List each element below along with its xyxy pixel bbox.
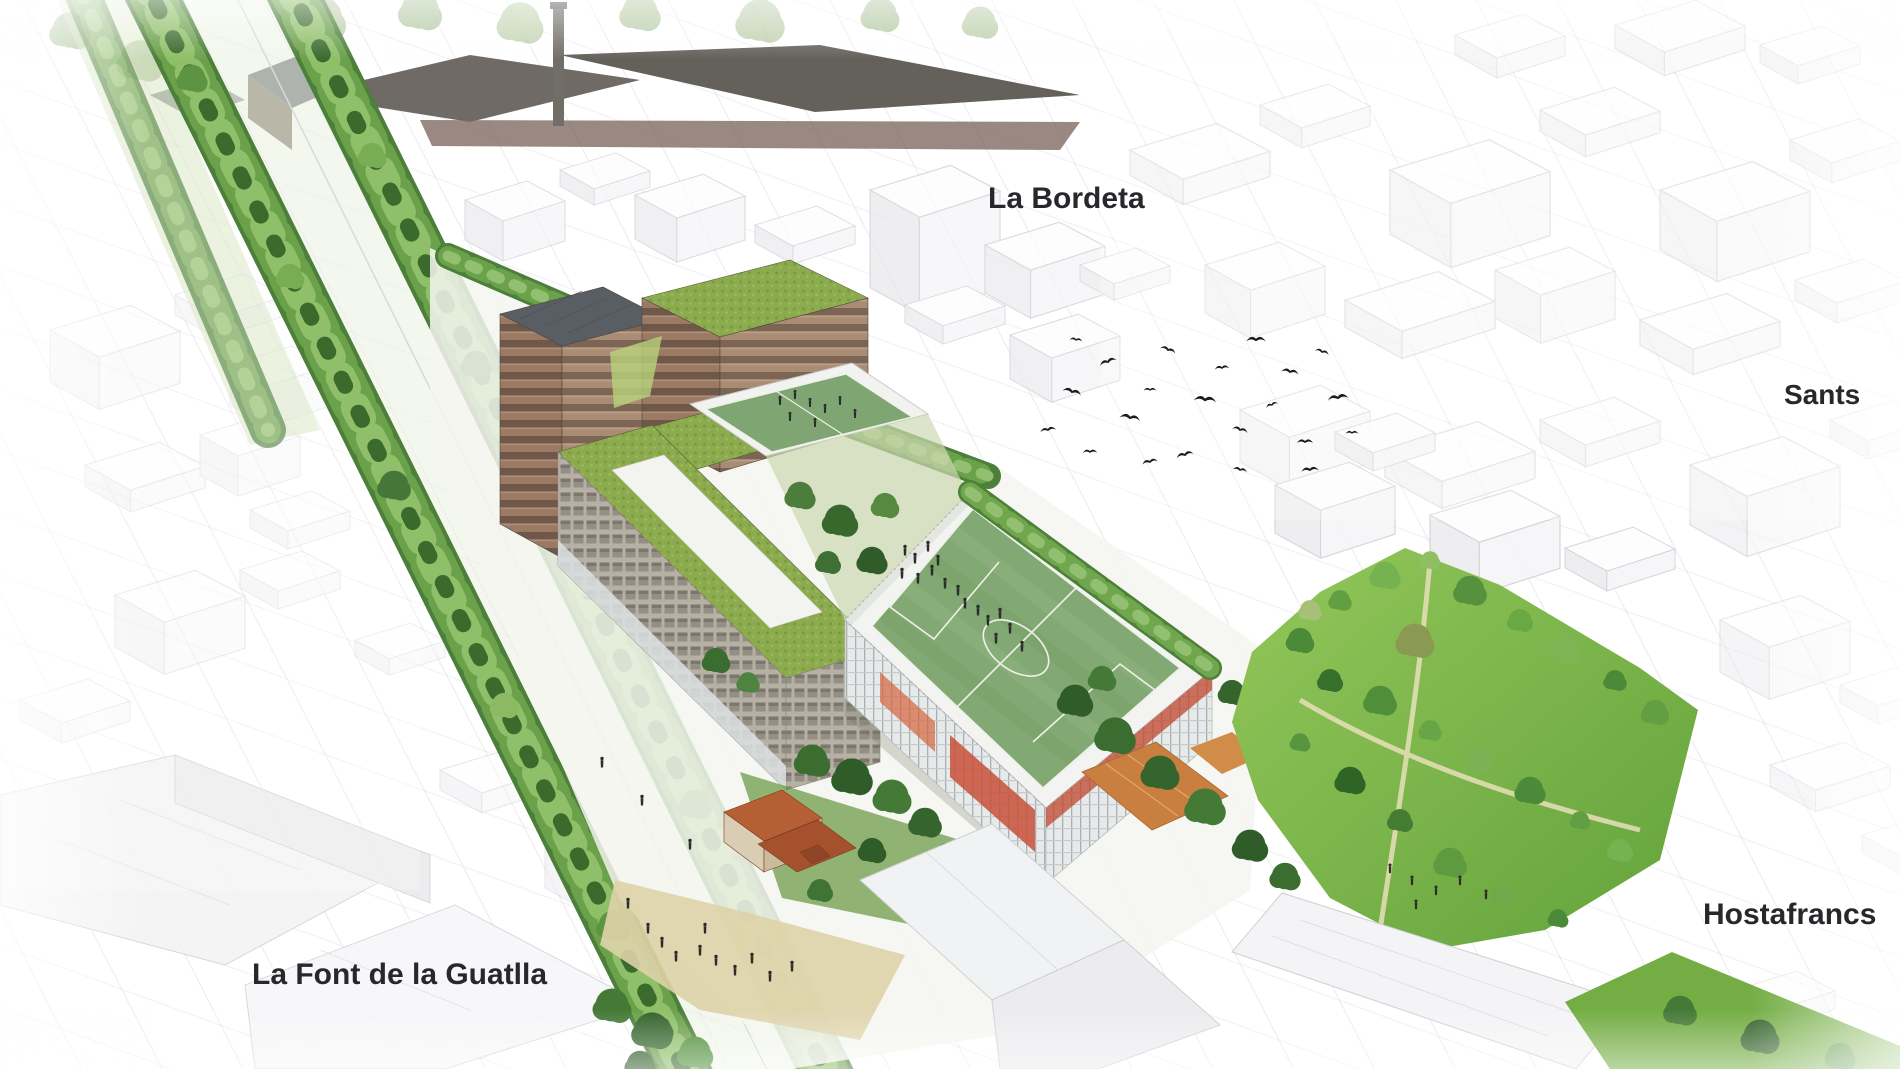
edge-fade-left [0, 0, 150, 1069]
label-hostafrancs: Hostafrancs [1703, 898, 1876, 931]
aerial-rendering: La Bordeta Sants Hostafrancs La Font de … [0, 0, 1900, 1069]
scene: La Bordeta Sants Hostafrancs La Font de … [0, 0, 1900, 1069]
edge-fade-top [0, 0, 1900, 60]
edge-fade-bottom [0, 1009, 1900, 1069]
label-la-font-de-la-guatlla: La Font de la Guatlla [252, 958, 547, 991]
park [1232, 548, 1698, 950]
label-sants: Sants [1784, 379, 1860, 410]
label-la-bordeta: La Bordeta [988, 182, 1145, 215]
